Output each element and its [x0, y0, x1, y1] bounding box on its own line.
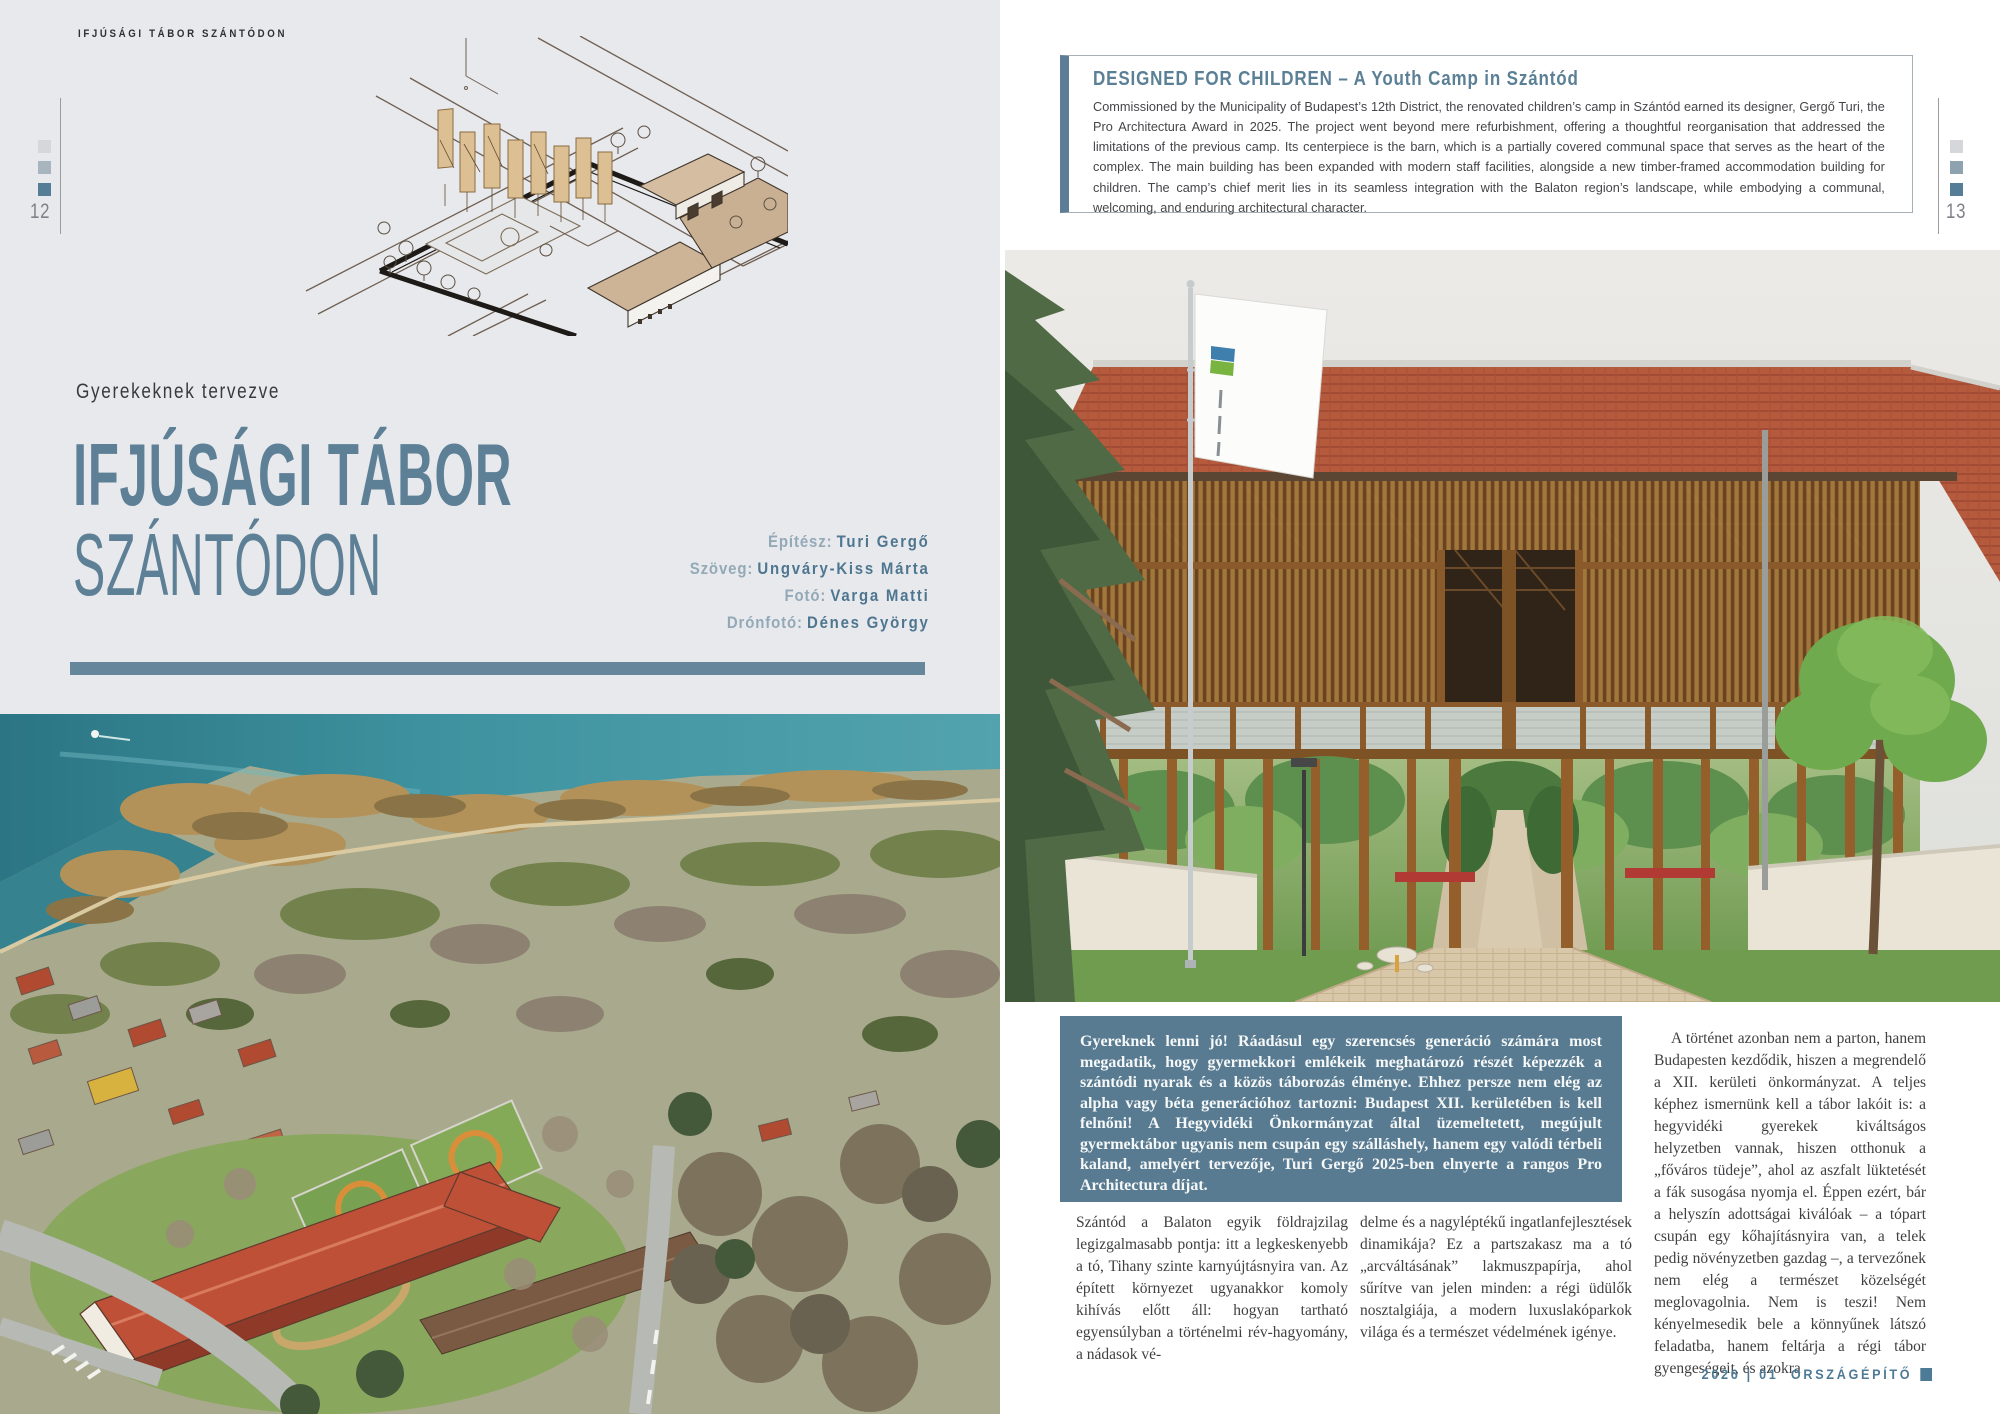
body-column-2: delme és a nagyléptékű ingatlanfejleszté…	[1360, 1212, 1632, 1344]
page-marker-square-light	[1950, 140, 1963, 153]
intro-box: DESIGNED FOR CHILDREN – A Youth Camp in …	[1060, 55, 1913, 213]
intro-body: Commissioned by the Municipality of Buda…	[1093, 97, 1885, 218]
running-header: IFJÚSÁGI TÁBOR SZÁNTÓDON	[78, 28, 287, 40]
page-title-line1: IFJÚSÁGI TÁBOR	[73, 432, 512, 518]
credit-row: Drónfotó: Dénes György	[690, 609, 930, 636]
lead-text: Gyereknek lenni jó! Ráadásul egy szerenc…	[1080, 1032, 1602, 1196]
page-number-left: 12	[30, 200, 50, 224]
lead-box: Gyereknek lenni jó! Ráadásul egy szerenc…	[1060, 1016, 1622, 1202]
intro-title: DESIGNED FOR CHILDREN – A Youth Camp in …	[1093, 68, 1772, 91]
building-photo	[1005, 250, 2000, 1002]
magazine-spread: IFJÚSÁGI TÁBOR SZÁNTÓDON 12	[0, 0, 2000, 1414]
body-column-1: Szántód a Balaton egyik földrajzilag leg…	[1076, 1212, 1348, 1366]
site-plan-illustration	[288, 36, 788, 336]
page-number-right: 13	[1946, 200, 1966, 224]
body-column-3: A történet azonban nem a parton, hanem B…	[1654, 1028, 1926, 1380]
title-rule	[70, 662, 925, 675]
page-marker-square-mid	[38, 161, 51, 174]
footer-text: 2026 | 01 ORSZÁGÉPÍTŐ	[1702, 1366, 1913, 1382]
page-marker-square-mid	[1950, 161, 1963, 174]
page-marker-square-dark	[38, 183, 51, 196]
page-footer: 2026 | 01 ORSZÁGÉPÍTŐ	[1702, 1366, 1932, 1382]
footer-magazine: ORSZÁGÉPÍTŐ	[1791, 1366, 1912, 1382]
kicker: Gyerekeknek tervezve	[76, 380, 280, 404]
footer-square-mark	[1920, 1368, 1932, 1381]
credits-block: Építész: Turi Gergő Szöveg: Ungváry-Kiss…	[690, 528, 930, 636]
aerial-photo	[0, 714, 1000, 1414]
page-marker-square-light	[38, 140, 51, 153]
footer-issue: 2026 | 01	[1702, 1366, 1779, 1382]
margin-rule-left	[60, 98, 61, 234]
credit-row: Építész: Turi Gergő	[690, 528, 930, 555]
credit-row: Szöveg: Ungváry-Kiss Márta	[690, 555, 930, 582]
page-title-line2: SZÁNTÓDON	[73, 522, 382, 608]
credit-row: Fotó: Varga Matti	[690, 582, 930, 609]
page-marker-square-dark	[1950, 183, 1963, 196]
margin-rule-right	[1938, 98, 1939, 234]
